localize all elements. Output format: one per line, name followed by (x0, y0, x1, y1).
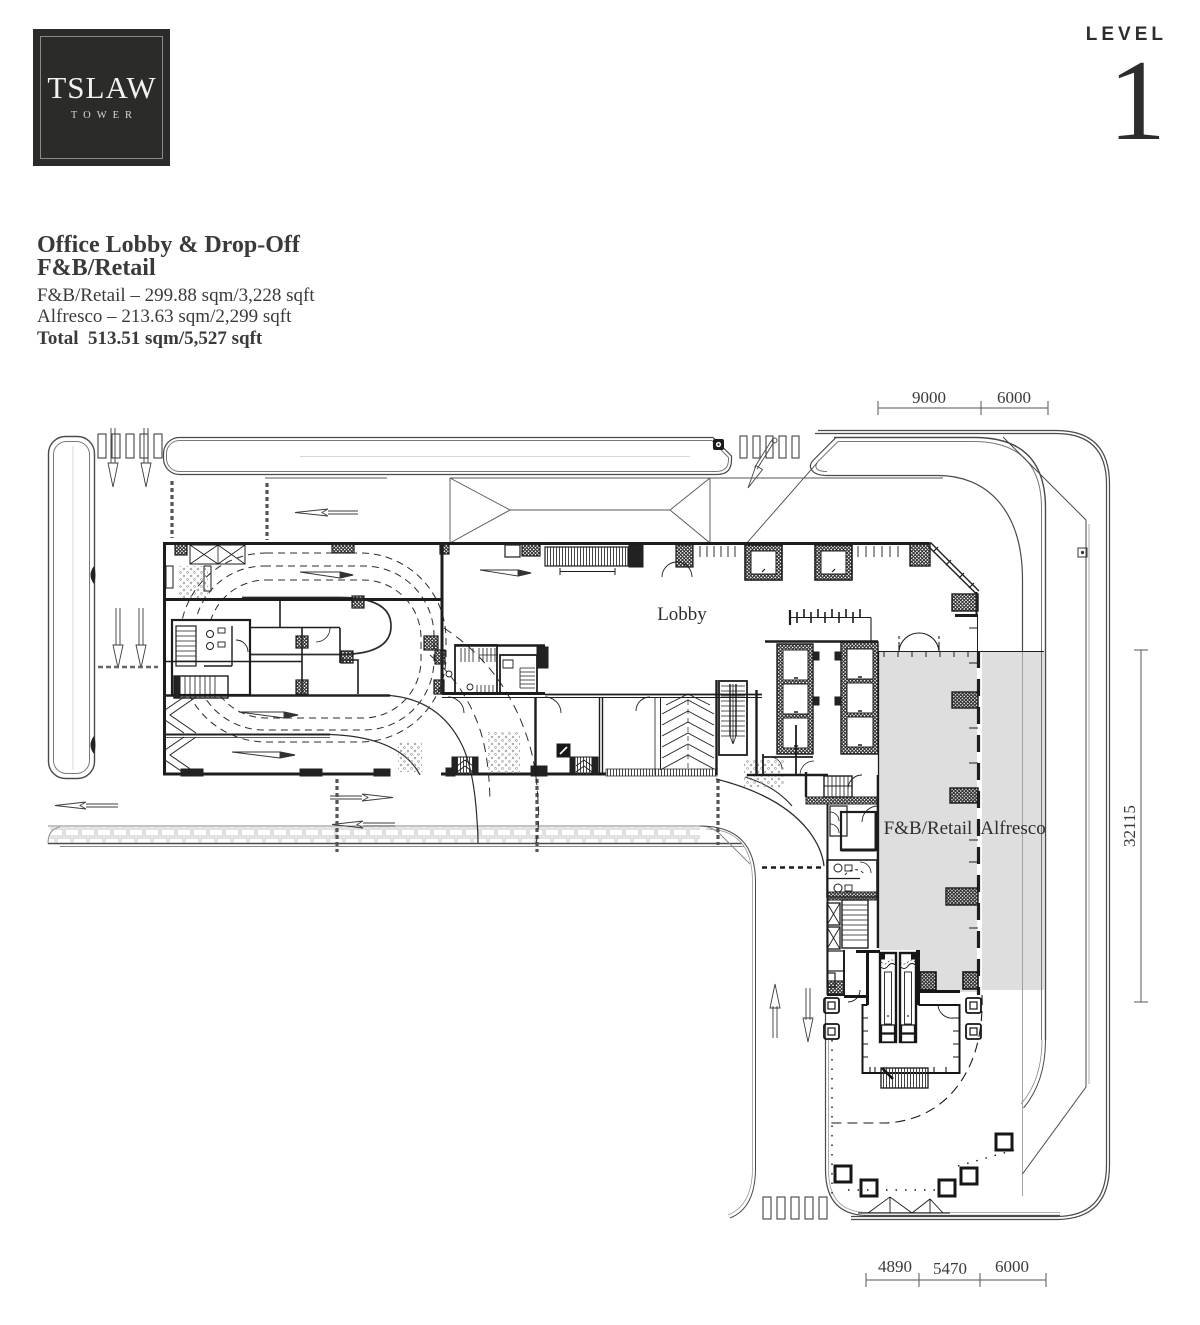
svg-text:32115: 32115 (1120, 805, 1139, 847)
svg-text:9000: 9000 (912, 388, 946, 407)
svg-text:4890: 4890 (878, 1257, 912, 1276)
svg-text:Lobby: Lobby (657, 604, 707, 625)
svg-text:Alfresco: Alfresco (980, 818, 1045, 839)
svg-text:5470: 5470 (933, 1259, 967, 1278)
svg-text:F&B/Retail: F&B/Retail (884, 818, 973, 839)
svg-text:6000: 6000 (997, 388, 1031, 407)
svg-text:6000: 6000 (995, 1257, 1029, 1276)
